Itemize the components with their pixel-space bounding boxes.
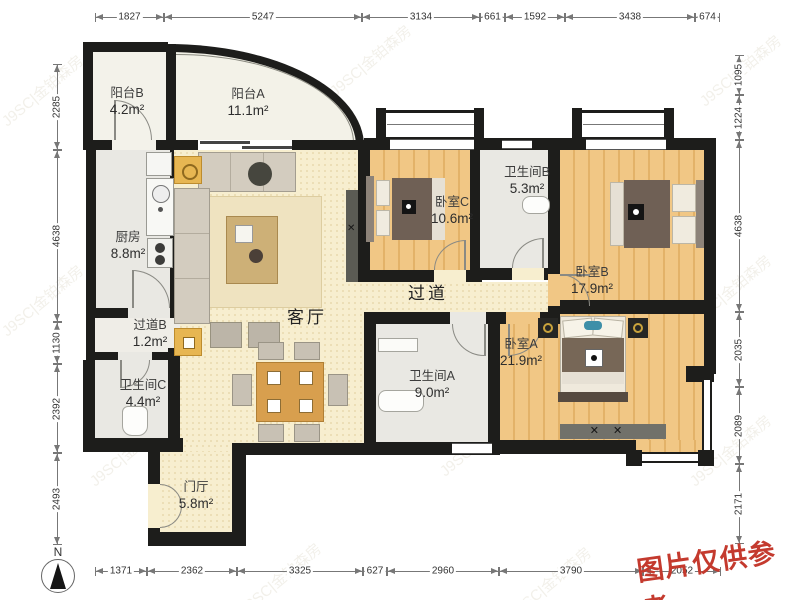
dim-label: 661 [482,12,503,23]
sofa-seam [175,233,209,234]
dim-label: 1827 [116,12,142,23]
dim-segment-right: 1224 [732,95,746,140]
dim-tick [719,13,720,22]
slider-panel-line [242,146,292,149]
dim-arrow-right [472,14,479,20]
lamp [182,164,198,180]
sofa-left [174,188,210,324]
dim-segment-bottom: 3790 [499,564,643,578]
dim-segment-right: 4638 [732,140,746,312]
ottoman [210,322,242,348]
dim-arrow-up [736,313,742,320]
dim-label: 3790 [558,566,584,577]
floor-corridor [358,282,548,312]
sofa-seam [175,278,209,279]
dim-arrow-right [139,568,146,574]
wall-balcony-b-left [83,42,93,150]
dim-label: 2285 [52,94,63,120]
wall-bathC-left [83,360,95,438]
bed-footboard-bedroomA [558,392,628,402]
bay-window-mullion [583,124,667,125]
dim-arrow-left [96,14,103,20]
dining-chair [258,342,284,360]
dim-label: 1371 [108,566,134,577]
accent-pillow [584,321,602,330]
bedroomC-door-opening [434,270,466,282]
dim-segment-top: 3438 [565,10,695,24]
kitchen-counter [146,178,174,236]
dim-arrow-down [736,456,742,463]
place-setting [267,371,281,385]
dim-label: 1224 [734,104,745,130]
dim-arrow-up [736,96,742,103]
room-label-hallway-b: 过道B1.2m² [133,317,168,351]
dining-chair [294,342,320,360]
table-item [235,225,253,243]
slider-panel-line [200,141,250,144]
dim-arrow-up [736,141,742,148]
place-setting [299,371,313,385]
dim-arrow-left [363,14,370,20]
dim-label: 1130 [52,330,63,356]
watermark: J9SC|金铂森房 [0,50,88,131]
dim-arrow-left [148,568,155,574]
fridge [146,152,172,176]
dim-segment-left: 4638 [50,150,64,322]
dim-arrow-right [491,568,498,574]
dim-segment-right: 2089 [732,387,746,464]
dim-arrow-right [156,14,163,20]
dim-arrow-left [238,568,245,574]
room-label-balcony-a: 阳台A11.1m² [227,86,268,120]
place-setting [299,399,313,413]
wall-bedroomA-bottom [496,440,636,454]
dim-segment-top: 674 [695,10,720,24]
pillow [376,210,390,236]
dining-chair [294,424,320,442]
bed-accessory [628,204,644,220]
dim-label: 4638 [734,213,745,239]
bed-accessory [585,349,603,367]
room-label-bedroom-c: 卧室C10.6m² [431,194,473,228]
compass: N [36,546,80,596]
sofa-seam [230,153,231,191]
room-label-living: 客厅 [287,307,327,329]
dim-label: 3438 [617,12,643,23]
entry-door-opening [148,484,160,528]
dim-label: 2362 [179,566,205,577]
dim-arrow-up [736,465,742,472]
bathA-sink [378,338,418,352]
dim-segment-right: 2171 [732,464,746,544]
side-plant [248,162,272,186]
wall-bathA-right [488,324,500,442]
wall-living-bottom [246,443,376,455]
bathB-door-opening [512,268,544,280]
dim-arrow-right [354,14,361,20]
wall-balcony-b-top [83,42,168,52]
dim-segment-bottom: 3325 [237,564,363,578]
dining-table [256,362,324,422]
wall-foyer-right [232,443,246,546]
dim-segment-right: 1095 [732,55,746,95]
dim-segment-top: 3134 [362,10,480,24]
dim-arrow-left [500,568,507,574]
bed-accessory [402,200,416,214]
bay-post [664,108,674,142]
dot [591,355,597,361]
pillow [672,216,696,244]
dim-label: 2035 [734,336,745,362]
bay-post [626,450,642,466]
dim-label: 3325 [287,566,313,577]
disclaimer-stamp: 图片仅供参考 [634,527,800,600]
dim-label: 1592 [522,12,548,23]
bay-window-bedroomB [578,110,672,140]
dim-arrow-left [506,14,513,20]
room-label-bedroom-a: 卧室A21.9m² [500,336,542,370]
dim-arrow-right [355,568,362,574]
dim-arrow-down [54,445,60,452]
dim-arrow-left [165,14,172,20]
dim-arrow-left [566,14,573,20]
dim-arrow-up [54,65,60,72]
room-label-corridor: 过道 [408,283,448,305]
burner [155,243,165,253]
bed-bedroomA [560,316,626,394]
pillow [376,180,390,206]
bed-sheet-bedroomA [562,372,624,384]
dot [406,204,411,209]
faucet [158,207,163,212]
bed-headboard-bedroomC [366,176,374,242]
dining-chair [328,374,348,406]
dim-label: 2960 [430,566,456,577]
wall-kitchen-left [86,148,96,310]
bedroomA-door-opening [506,312,540,324]
door-leaf [484,324,486,356]
bathB-fixture [522,196,550,214]
stove [147,238,173,268]
dim-arrow-down [54,142,60,149]
north-arrow-icon [41,559,75,593]
floorplan-canvas: J9SC|金铂森房 J9SC|金铂森房 J9SC|金铂森房 J9SC|金铂森房 … [0,0,800,600]
balconyB-kitchen-door-opening [112,140,156,150]
dim-arrow-up [54,365,60,372]
dim-arrow-down [736,304,742,311]
dim-arrow-right [557,14,564,20]
dim-arrow-down [736,132,742,139]
dim-label: 3134 [408,12,434,23]
bathA-door-opening [450,312,486,324]
dim-label: 2493 [52,486,63,512]
tv-mark: ✕ [347,224,355,234]
dim-segment-top: 1827 [95,10,164,24]
burner [155,255,165,265]
bay-frame-right-bedroomA [702,380,712,454]
bed-headboard-bedroomB [696,180,704,248]
dim-segment-bottom: 2362 [147,564,237,578]
dim-arrow-down [54,356,60,363]
dim-label: 4638 [52,223,63,249]
dim-arrow-up [736,388,742,395]
window-bedroomB [586,139,666,150]
lamp-table [174,156,202,184]
lamp [183,337,195,349]
room-label-bath-c: 卫生间C4.4m² [120,377,167,411]
dim-segment-bottom: 627 [363,564,387,578]
dim-label: 5247 [250,12,276,23]
room-label-bedroom-b: 卧室B17.9m² [571,264,613,298]
dim-label: 674 [697,12,718,23]
wall-bathA-left [364,312,376,455]
window-bedroomC [390,139,474,150]
dim-segment-bottom: 1371 [95,564,147,578]
dim-label: 627 [365,566,386,577]
bay-post [572,108,582,142]
lamp [633,323,643,333]
dim-segment-bottom: 2960 [387,564,499,578]
bay-window-mullion [387,124,475,125]
bay-window-bedroomC [382,110,480,140]
lamp-table [174,328,202,356]
room-label-balcony-b: 阳台B4.2m² [110,85,145,119]
dim-label: 2089 [734,412,745,438]
dim-arrow-right [229,568,236,574]
wall-hallwayB-left [86,310,95,352]
sink [152,185,170,203]
dim-segment-top: 661 [480,10,505,24]
bedroomB-door-opening [548,274,560,306]
window-bathA [452,443,492,454]
dim-segment-left: 2493 [50,453,64,545]
dim-segment-right: 2035 [732,312,746,387]
dim-label: 1095 [734,62,745,88]
dim-arrow-left [388,568,395,574]
bay-post [376,108,386,142]
room-label-foyer: 门厅5.8m² [179,479,214,513]
watermark: J9SC|金铂森房 [0,260,88,341]
dim-label: 2171 [734,491,745,517]
dim-arrow-up [54,323,60,330]
nightstand [538,318,558,338]
coffee-table [226,216,278,284]
dim-arrow-down [54,314,60,321]
dim-segment-left: 1130 [50,322,64,364]
dim-arrow-down [54,537,60,544]
watermark: J9SC|金铂森房 [325,20,416,101]
room-label-bath-a: 卫生间A9.0m² [409,368,455,402]
tv-cabinet-bedroomA: ✕✕ [560,424,666,439]
dim-arrow-down [736,379,742,386]
lamp [543,323,553,333]
bay-post [474,108,484,142]
room-label-kitchen: 厨房8.8m² [111,229,146,263]
compass-north-label: N [36,546,80,558]
bay-frame-bottom-bedroomA [640,452,700,463]
dim-arrow-left [96,568,103,574]
dim-arrow-up [54,151,60,158]
nightstand [628,318,648,338]
pillow [672,184,696,212]
dining-chair [258,424,284,442]
bed-sheet-bedroomB [610,182,624,246]
dim-label: 2392 [52,395,63,421]
compass-needle [50,563,66,589]
wall-right [704,138,716,374]
table-item [249,249,263,263]
room-label-bath-b: 卫生间B5.3m² [504,164,550,198]
dim-segment-left: 2392 [50,364,64,453]
bathC-door-opening [118,352,152,360]
bay-post [698,450,714,466]
tv-cabinet-living: ✕ [346,190,358,282]
dim-arrow-up [54,454,60,461]
dim-segment-top: 5247 [164,10,362,24]
wall-balcony-divider [166,44,176,148]
place-setting [267,399,281,413]
sofa-top [198,152,296,192]
window-bathB [502,140,532,149]
dining-chair [232,374,252,406]
dim-segment-top: 1592 [505,10,565,24]
dim-arrow-right [687,14,694,20]
dot [633,209,639,215]
dim-segment-left: 2285 [50,64,64,150]
